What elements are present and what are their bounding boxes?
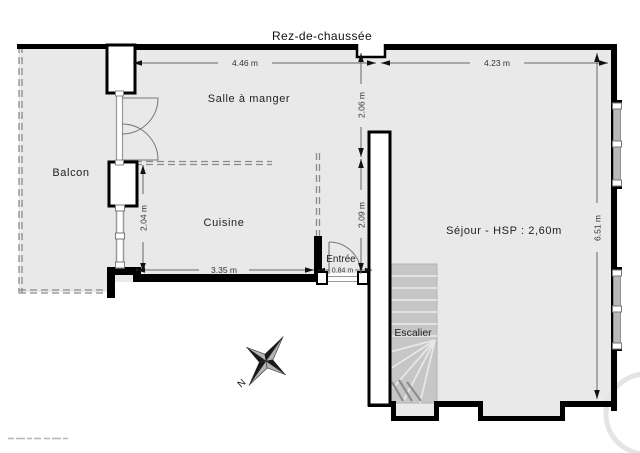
window-mullion xyxy=(613,343,622,349)
room-label-balcon: Balcon xyxy=(52,167,89,179)
floor-plan-canvas: N Rez-de-chaussée Salle à manger Balcon … xyxy=(0,0,640,453)
window-mullion xyxy=(116,233,125,239)
window-mullion xyxy=(116,205,125,211)
window-mullion xyxy=(613,270,622,276)
window-mullion xyxy=(116,262,125,268)
wall-pier-middle xyxy=(109,162,137,206)
dim-label-entree-height: 2.09 m xyxy=(357,202,367,228)
room-floor-salle-cuisine-entree xyxy=(111,46,394,282)
compass-north-label: N xyxy=(236,377,249,390)
dim-label-salle-height: 2.06 m xyxy=(357,92,367,118)
window-mullion xyxy=(613,103,622,109)
window-mullion xyxy=(613,141,622,147)
wall-pier-top xyxy=(107,45,135,93)
dim-label-cuisine-height: 2.04 m xyxy=(139,205,149,231)
page-title: Rez-de-chaussée xyxy=(272,29,372,43)
door-jamb-left xyxy=(317,272,327,284)
door-frame-cap-bottom xyxy=(116,160,124,165)
floor-bay-right xyxy=(483,401,560,417)
room-label-sejour: Séjour - HSP : 2,60m xyxy=(446,225,562,237)
dim-label-cuisine-width: 3.35 m xyxy=(211,265,237,275)
door-jamb-right xyxy=(358,272,368,284)
room-label-cuisine: Cuisine xyxy=(204,217,245,229)
sejour-left-wall xyxy=(369,132,390,405)
window-mullion xyxy=(613,306,622,312)
compass-rose-icon: N xyxy=(229,323,303,400)
floor-plan-page: N Rez-de-chaussée Salle à manger Balcon … xyxy=(0,0,640,453)
room-label-salle-a-manger: Salle à manger xyxy=(208,93,290,105)
dim-label-sejour-width: 4.23 m xyxy=(484,58,510,68)
door-frame xyxy=(117,94,123,162)
dim-label-door-width: 0.84 m xyxy=(332,268,354,275)
dim-label-sejour-height: 6.51 m xyxy=(593,215,603,241)
room-label-entree: Entrée xyxy=(326,254,356,265)
room-label-escalier: Escalier xyxy=(394,327,432,339)
window-mullion xyxy=(613,180,622,186)
window-left xyxy=(116,205,125,268)
dim-label-salle-width: 4.46 m xyxy=(232,58,258,68)
door-frame-cap-top xyxy=(116,91,124,96)
door-sill xyxy=(328,273,359,284)
